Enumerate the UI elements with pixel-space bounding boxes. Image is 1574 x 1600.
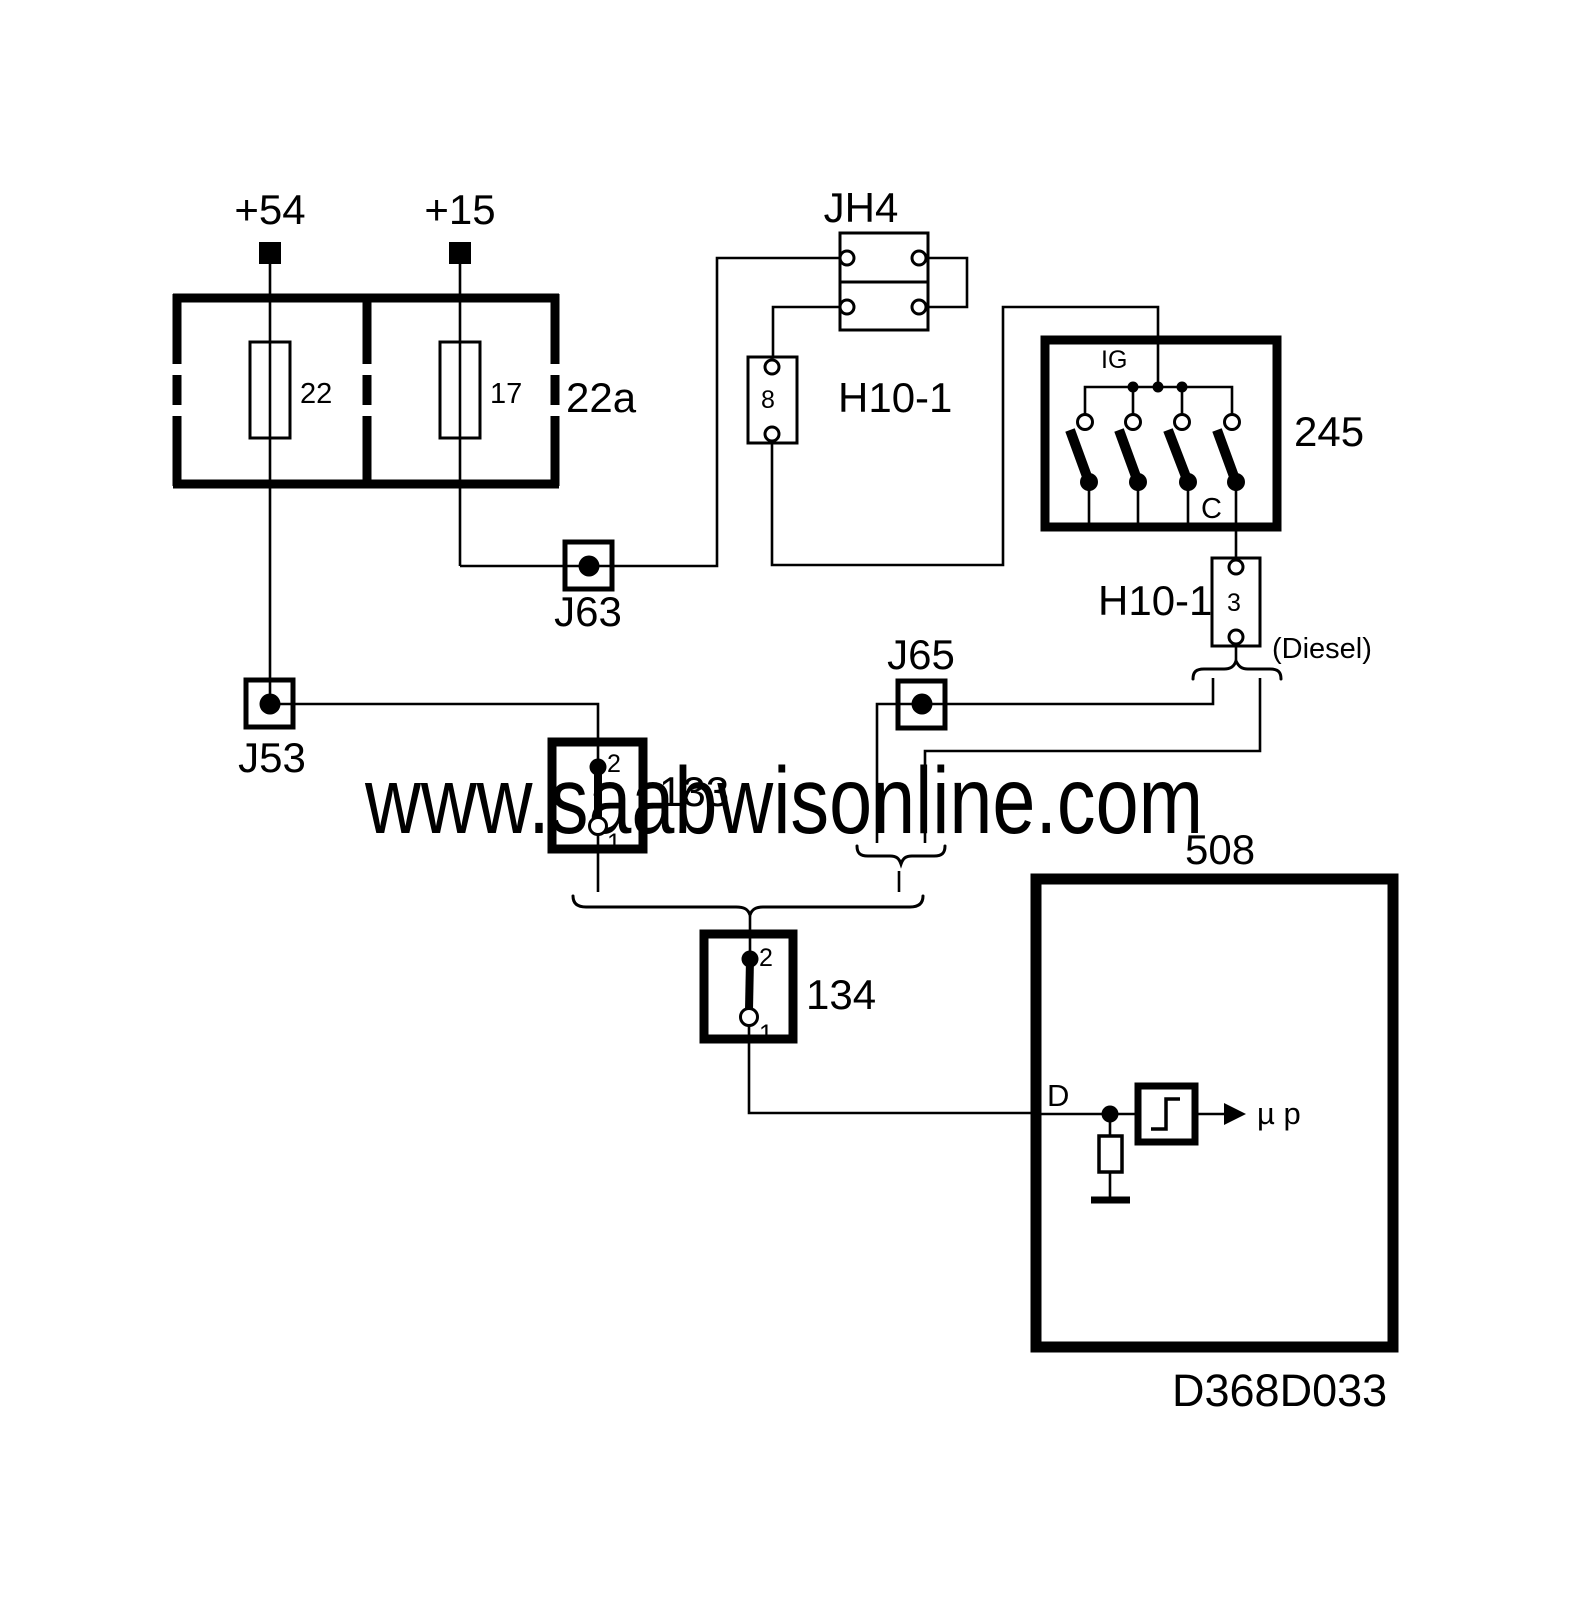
h10-1-pin8-terminal-bottom — [765, 427, 779, 441]
245-contact-circle-3 — [1175, 415, 1190, 430]
134-switch-bar — [749, 959, 750, 1010]
245-blade-pivot-dot-4 — [1227, 473, 1245, 491]
508-label: 508 — [1185, 826, 1255, 873]
133-pin1-circle — [590, 818, 607, 835]
245-bus-junction-dot-1 — [1128, 382, 1139, 393]
134-pin2-number: 2 — [759, 944, 773, 972]
fusebox-label: 22a — [566, 374, 637, 421]
junction-j65: J65 — [887, 631, 955, 728]
508-resistor — [1099, 1136, 1122, 1172]
134-pin1-circle — [741, 1009, 758, 1026]
j53-dot — [260, 694, 281, 715]
245-contact-circle-2 — [1126, 415, 1141, 430]
wiring-diagram-canvas: www.saabwisonline.com +54 +15 — [0, 0, 1574, 1600]
h10-1-pin8-number: 8 — [761, 386, 775, 414]
h10-1-pin8-label: H10-1 — [838, 374, 952, 421]
diesel-note: (Diesel) — [1272, 633, 1372, 665]
wire-jh4-to-h10-1-pin8 — [773, 307, 840, 360]
terminal-54-label: +54 — [234, 186, 305, 233]
fuse-17-label: 17 — [490, 378, 522, 410]
fuse-22-label: 22 — [300, 378, 332, 410]
terminal-15-label: +15 — [424, 186, 495, 233]
h10-1-pin3-number: 3 — [1227, 589, 1241, 617]
jh4-pin-bottom-left — [840, 300, 854, 314]
508-node-dot — [1102, 1106, 1119, 1123]
134-pin1-number: 1 — [759, 1020, 773, 1048]
133-label: 133 — [659, 768, 729, 815]
wire-jh4-right-jumper — [928, 258, 967, 307]
control-module-508: 508 D µ p — [1036, 826, 1393, 1347]
connector-jh4: JH4 — [824, 184, 928, 330]
jh4-pin-bottom-right — [912, 300, 926, 314]
brace-main-merge — [573, 896, 923, 915]
245-c-label: C — [1201, 493, 1222, 525]
drawing-number: D368D033 — [1172, 1365, 1387, 1416]
jh4-pin-top-left — [840, 251, 854, 265]
power-feed-54: +54 — [234, 186, 305, 264]
j63-label: J63 — [554, 588, 622, 635]
switch-134: 2 1 134 — [704, 934, 876, 1048]
junction-j63: J63 — [554, 542, 622, 635]
j63-dot — [579, 556, 600, 577]
wiring-diagram-page: www.saabwisonline.com +54 +15 — [0, 0, 1574, 1600]
508-pin-d-label: D — [1047, 1078, 1069, 1113]
508-arrow-head — [1224, 1103, 1246, 1125]
ignition-switch-245: IG 245 C — [1045, 340, 1364, 527]
245-contact-circle-4 — [1225, 415, 1240, 430]
h10-1-pin8-terminal-top — [765, 360, 779, 374]
508-microprocessor-label: µ p — [1257, 1096, 1301, 1131]
jh4-label: JH4 — [824, 184, 899, 231]
terminal-54-square — [259, 242, 281, 264]
connector-h10-1-pin8: 8 H10-1 — [748, 357, 952, 443]
j53-label: J53 — [238, 734, 306, 781]
h10-1-pin3-terminal-bottom — [1229, 630, 1243, 644]
brace-diesel-split — [1193, 661, 1281, 679]
fusebox-22a: 22 17 22a — [173, 294, 637, 488]
h10-1-pin3-terminal-top — [1229, 560, 1243, 574]
jh4-pin-top-right — [912, 251, 926, 265]
245-contact-circle-1 — [1078, 415, 1093, 430]
134-label: 134 — [806, 971, 876, 1018]
j65-label: J65 — [887, 631, 955, 678]
245-box — [1045, 340, 1277, 527]
133-pin1-number: 1 — [607, 829, 621, 857]
245-bus-junction-dot-3 — [1177, 382, 1188, 393]
junction-j53: J53 — [238, 680, 306, 781]
245-bus-junction-dot-2 — [1153, 382, 1164, 393]
h10-1-pin3-label: H10-1 — [1098, 577, 1212, 624]
terminal-15-square — [449, 242, 471, 264]
power-feed-15: +15 — [424, 186, 495, 264]
j65-dot — [912, 694, 933, 715]
watermark-text: www.saabwisonline.com — [364, 748, 1203, 854]
245-ig-label: IG — [1101, 346, 1127, 374]
133-pin2-number: 2 — [607, 750, 621, 778]
245-label: 245 — [1294, 408, 1364, 455]
